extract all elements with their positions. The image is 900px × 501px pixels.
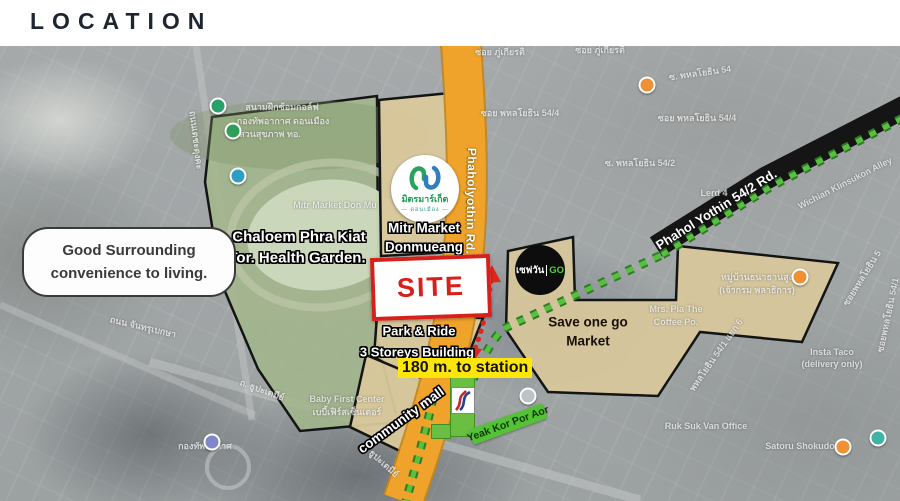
map-label: ซอย ภู่เกียรติ <box>575 46 625 57</box>
callout-line1: Good Surrounding <box>62 239 195 262</box>
map-pin <box>225 123 242 140</box>
save-one-go-logo: เซฟวัน GO <box>515 245 565 295</box>
mitr-market-label-line1: Mitr Market <box>388 221 460 236</box>
mitr-logo-mark <box>408 165 442 191</box>
site-box: SITE <box>370 254 492 321</box>
mitr-logo-thai: มิตรมาร์เก็ต <box>402 192 449 206</box>
save-one-logo-thai: เซฟวัน <box>516 263 544 278</box>
map-pin <box>870 430 887 447</box>
save-one-label-line1: Save one go <box>548 315 628 330</box>
map-pin <box>520 388 537 405</box>
map-label: Insta Taco <box>810 347 854 357</box>
park-ride-label-line1: Park & Ride <box>383 324 456 339</box>
park-label-line2: Tor. Health Garden. <box>228 250 365 267</box>
road-label-phaholyothin: Phaholyothin Rd. <box>463 148 479 255</box>
map-pin <box>792 269 809 286</box>
distance-label: 180 m. to station <box>398 358 532 378</box>
map-label: สวนสุขภาพ ทอ. <box>239 127 301 141</box>
map-label: Mitr Market Don Mu <box>293 200 377 210</box>
map-label: Mrs. Pia The <box>649 304 702 314</box>
map-label: Satoru Shokudo <box>765 441 835 451</box>
save-one-logo-go: GO <box>546 265 564 276</box>
map-label: กองทัพอากาศ ดอนเมือง <box>237 114 330 128</box>
map-label: ซอย พหลโยธิน 54/4 <box>481 106 559 120</box>
map-label: Ruk Suk Van Office <box>665 421 748 431</box>
map-label: ซ. พหลโยธิน 54/2 <box>605 156 675 170</box>
mitr-market-logo: มิตรมาร์เก็ต — ดอนเมือง — <box>391 155 459 223</box>
location-slide: ซอย ภู่เกียรติซอย ภู่เกียรติซอย พหลโยธิน… <box>0 0 900 501</box>
srt-logo-mark <box>452 388 474 413</box>
callout-box: Good Surrounding convenience to living. <box>22 227 236 297</box>
map-pin <box>639 77 656 94</box>
mitr-market-label-line2: Donmueang <box>385 240 463 255</box>
map-pin <box>230 168 247 185</box>
map-label: Baby First Center <box>309 394 384 404</box>
station-marker-small <box>431 424 451 439</box>
map-label: หมู่บ้านธนาธานสูง <box>721 270 793 284</box>
callout-line2: convenience to living. <box>51 262 208 285</box>
map-pin <box>210 98 227 115</box>
map-label: สนามฝึกซ้อมกอล์ฟ <box>245 100 319 114</box>
map-label: เบบี้เฟิร์สเซ็นเตอร์ <box>313 405 382 419</box>
map-pin <box>835 439 852 456</box>
map-label: Coffee Po. <box>654 317 699 327</box>
header: LOCATION <box>0 0 900 46</box>
mitr-logo-sub: — ดอนเมือง — <box>401 206 448 214</box>
map-label: (เจ้ากรม พลาธิการ) <box>719 283 794 297</box>
site-label: SITE <box>396 271 465 304</box>
park-label-line1: Chaloem Phra Kiat <box>232 229 365 246</box>
save-one-label-line2: Market <box>566 334 610 349</box>
map-pin <box>204 434 221 451</box>
map-label: ซอย ภู่เกียรติ <box>475 46 525 59</box>
map-label: ซอย พหลโยธิน 54/4 <box>658 111 736 125</box>
map-label: (delivery only) <box>801 359 862 369</box>
page-title: LOCATION <box>0 0 900 35</box>
srt-station-logo <box>451 387 475 414</box>
